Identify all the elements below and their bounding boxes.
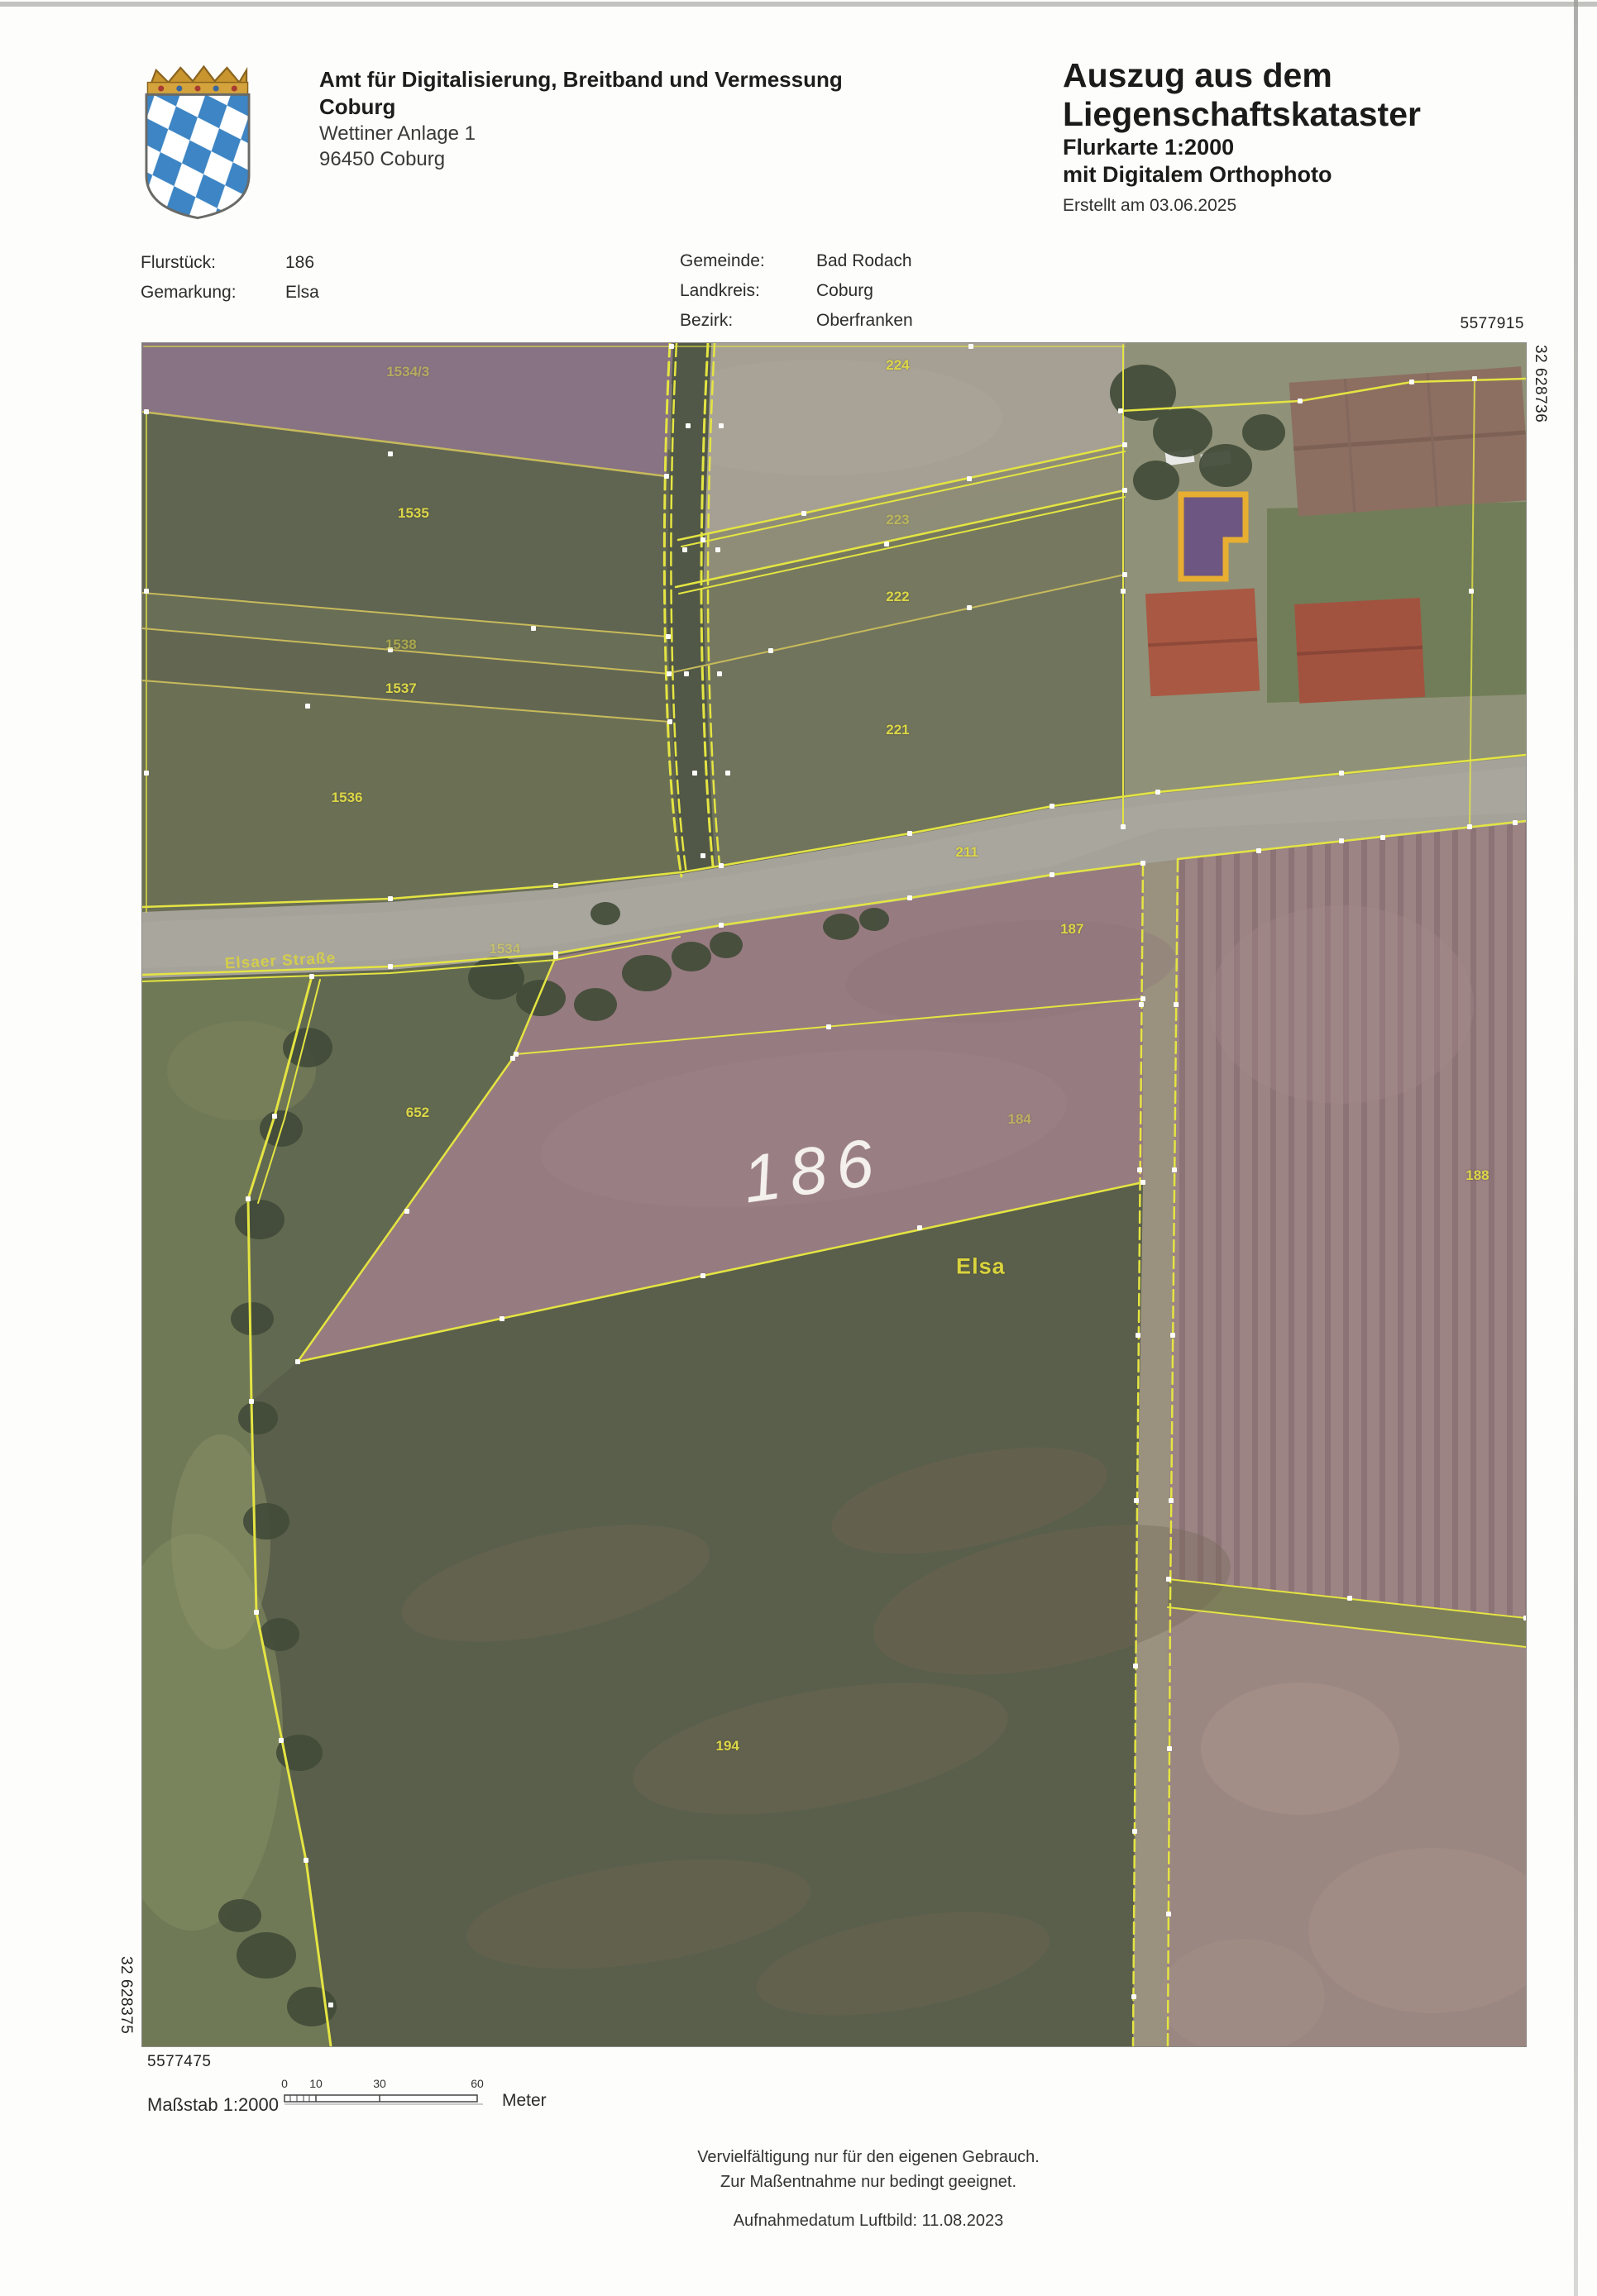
map-label-223: 223 <box>886 512 909 528</box>
footer-line3: Aufnahmedatum Luftbild: 11.08.2023 <box>389 2208 1348 2233</box>
map-label-652: 652 <box>406 1105 429 1121</box>
title-subtitle2: mit Digitalem Orthophoto <box>1063 161 1559 189</box>
coordinate-top-right: 5577915 <box>1398 315 1524 333</box>
map-labels-layer: 1534/31535153815371536224223222221211187… <box>142 343 1526 2046</box>
map-label-222: 222 <box>886 589 909 605</box>
bavaria-coat-of-arms-icon <box>135 63 261 222</box>
map-label-184: 184 <box>1007 1111 1030 1128</box>
gemeinde-value: Bad Rodach <box>816 246 912 276</box>
parcel-metadata-left: Flurstück:186 Gemarkung:Elsa <box>141 248 319 308</box>
cadastral-extract-page: Amt für Digitalisierung, Breitband und V… <box>0 0 1597 2296</box>
bezirk-value: Oberfranken <box>816 306 913 336</box>
landkreis-value: Coburg <box>816 276 873 306</box>
map-label-1534-3: 1534/3 <box>386 364 429 380</box>
map-label-194: 194 <box>715 1738 739 1754</box>
parcel-metadata-right: Gemeinde:Bad Rodach Landkreis:Coburg Bez… <box>680 246 913 336</box>
scale-tick-10: 10 <box>309 2077 323 2090</box>
title-subtitle1: Flurkarte 1:2000 <box>1063 134 1559 161</box>
bezirk-label: Bezirk: <box>680 306 816 336</box>
coordinate-right-vertical: 32 628736 <box>1531 345 1549 422</box>
coordinate-bottom-left: 5577475 <box>147 2053 211 2071</box>
agency-city: 96450 Coburg <box>319 146 1064 172</box>
map-label-1534: 1534 <box>489 941 520 957</box>
map-label-elsa: Elsa <box>956 1253 1006 1279</box>
scale-bar: 0 10 30 60 <box>280 2077 495 2117</box>
map-label-1535: 1535 <box>398 505 429 522</box>
map-label-elsaer-stra-e: Elsaer Straße <box>225 949 337 973</box>
scan-edge-right <box>1574 0 1578 2296</box>
gemeinde-label: Gemeinde: <box>680 246 816 276</box>
gemarkung-value: Elsa <box>285 278 319 308</box>
scan-edge-top <box>0 2 1597 7</box>
flurstueck-label: Flurstück: <box>141 248 285 278</box>
footer-line1: Vervielfältigung nur für den eigenen Geb… <box>389 2145 1348 2170</box>
scale-tick-0: 0 <box>281 2077 288 2090</box>
orthophoto-map: 1534/31535153815371536224223222221211187… <box>142 343 1526 2046</box>
scale-tick-60: 60 <box>471 2077 484 2090</box>
scale-unit: Meter <box>502 2091 547 2111</box>
landkreis-label: Landkreis: <box>680 276 816 306</box>
created-date: Erstellt am 03.06.2025 <box>1063 196 1559 216</box>
map-label-187: 187 <box>1060 921 1083 938</box>
map-label-186: 186 <box>739 1124 888 1219</box>
map-label-188: 188 <box>1466 1167 1489 1184</box>
map-label-1537: 1537 <box>385 680 417 697</box>
map-label-211: 211 <box>955 844 978 861</box>
scale-tick-30: 30 <box>373 2077 386 2090</box>
title-line2: Liegenschaftskataster <box>1063 95 1559 134</box>
title-block: Auszug aus dem Liegenschaftskataster Flu… <box>1063 56 1559 216</box>
footer-line2: Zur Maßentnahme nur bedingt geeignet. <box>389 2170 1348 2194</box>
agency-street: Wettiner Anlage 1 <box>319 121 1064 146</box>
map-label-1538: 1538 <box>385 637 417 653</box>
gemarkung-label: Gemarkung: <box>141 278 285 308</box>
agency-name-line2: Coburg <box>319 93 1064 121</box>
map-label-224: 224 <box>886 357 909 374</box>
map-label-221: 221 <box>886 722 909 738</box>
title-line1: Auszug aus dem <box>1063 56 1559 95</box>
agency-name-line1: Amt für Digitalisierung, Breitband und V… <box>319 66 1064 93</box>
footer-notes: Vervielfältigung nur für den eigenen Geb… <box>389 2145 1348 2233</box>
map-label-1536: 1536 <box>332 790 363 806</box>
coordinate-left-vertical: 32 628375 <box>117 1956 135 2034</box>
agency-block: Amt für Digitalisierung, Breitband und V… <box>319 66 1064 172</box>
flurstueck-value: 186 <box>285 248 314 278</box>
scale-label: Maßstab 1:2000 <box>147 2094 279 2116</box>
